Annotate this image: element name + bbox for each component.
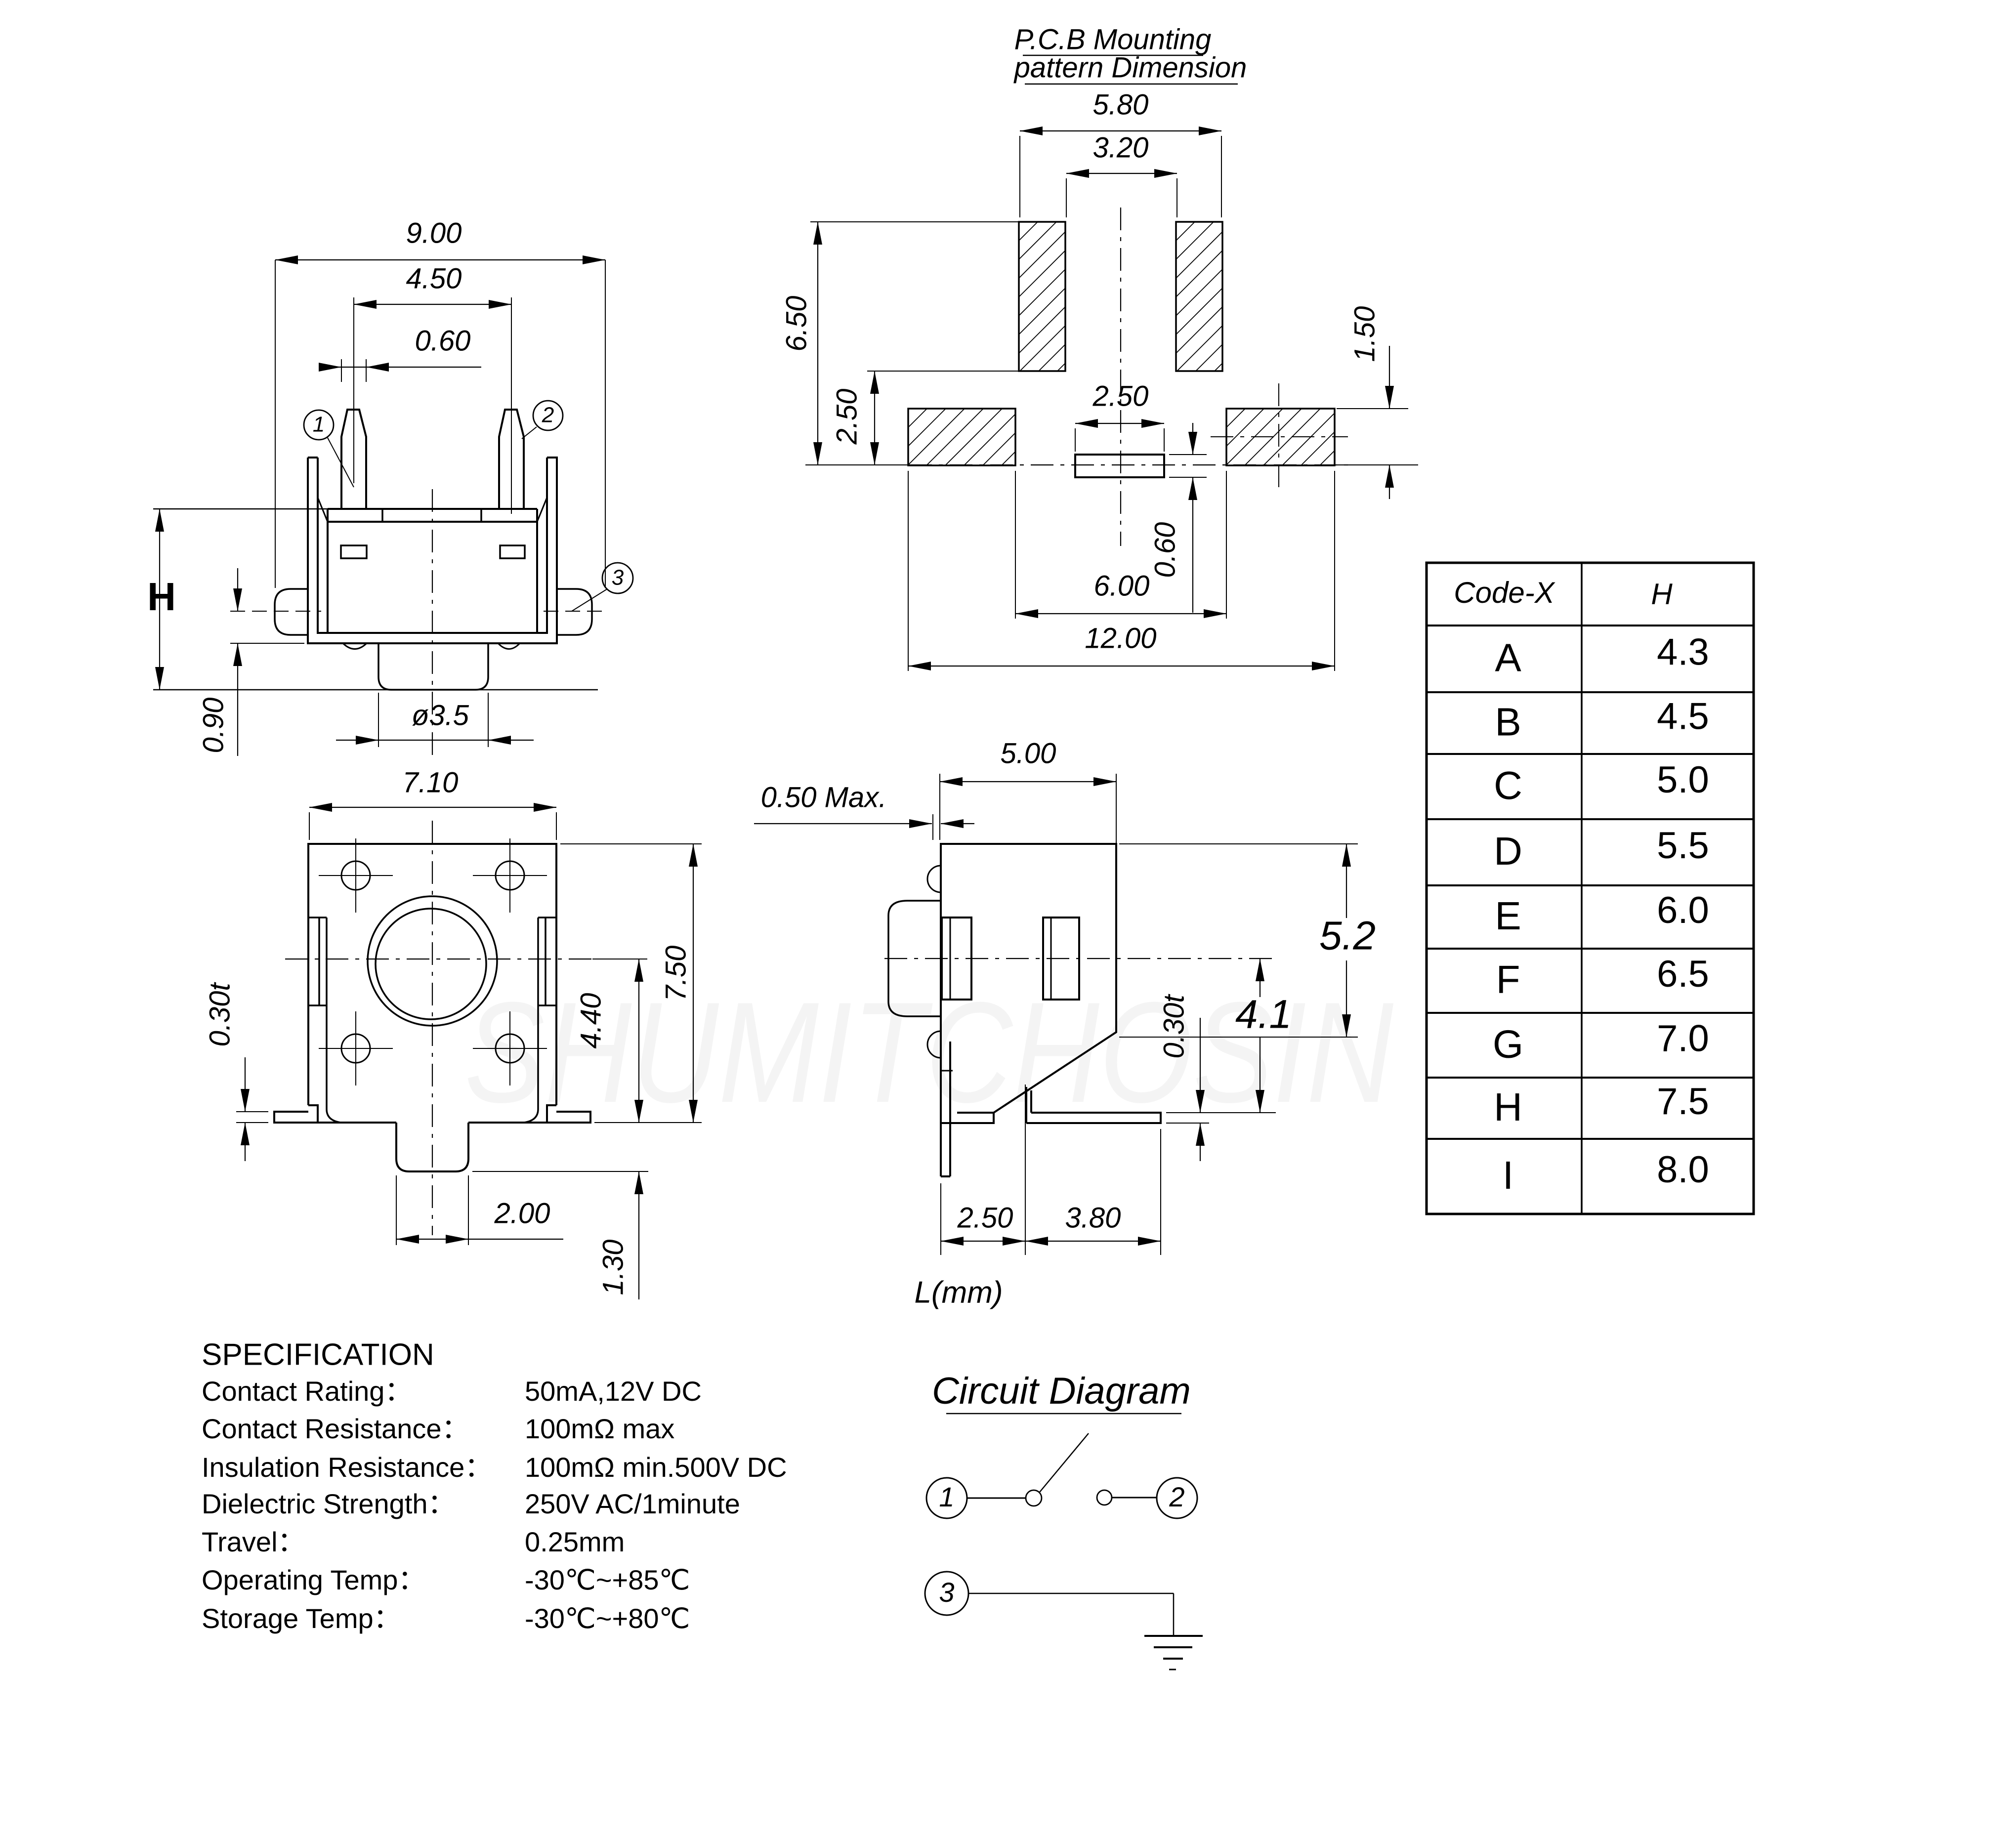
svg-text:6.00: 6.00 bbox=[1094, 570, 1150, 602]
svg-text:250V AC/1minute: 250V AC/1minute bbox=[525, 1488, 740, 1519]
svg-text:G: G bbox=[1493, 1022, 1523, 1066]
svg-text:5.5: 5.5 bbox=[1657, 825, 1709, 867]
svg-text:1: 1 bbox=[939, 1481, 954, 1512]
svg-text:6.50: 6.50 bbox=[780, 296, 812, 352]
svg-text:pattern Dimension: pattern Dimension bbox=[1013, 51, 1247, 83]
svg-text:0.30t: 0.30t bbox=[204, 982, 236, 1047]
svg-text:5.2: 5.2 bbox=[1319, 914, 1376, 959]
svg-text:12.00: 12.00 bbox=[1085, 622, 1156, 654]
svg-text:4.3: 4.3 bbox=[1657, 631, 1709, 673]
svg-text:0.30t: 0.30t bbox=[1158, 994, 1190, 1059]
svg-text:9.00: 9.00 bbox=[406, 217, 462, 249]
svg-text:7.50: 7.50 bbox=[660, 946, 692, 1001]
svg-text:ø3.5: ø3.5 bbox=[412, 699, 469, 731]
svg-text:7.10: 7.10 bbox=[403, 766, 459, 798]
svg-text:Dielectric Strength：: Dielectric Strength： bbox=[202, 1488, 456, 1519]
svg-text:2.00: 2.00 bbox=[494, 1197, 550, 1229]
svg-text:H: H bbox=[147, 575, 176, 619]
svg-text:Code-X: Code-X bbox=[1454, 576, 1555, 609]
svg-text:5.0: 5.0 bbox=[1657, 759, 1709, 801]
svg-text:5.00: 5.00 bbox=[1001, 737, 1056, 769]
svg-text:A: A bbox=[1495, 636, 1521, 680]
svg-text:100mΩ min.500V DC: 100mΩ min.500V DC bbox=[525, 1452, 787, 1483]
svg-text:4.40: 4.40 bbox=[575, 993, 607, 1049]
svg-text:L(mm): L(mm) bbox=[914, 1275, 1003, 1309]
svg-text:6.5: 6.5 bbox=[1657, 953, 1709, 995]
svg-text:Operating Temp：: Operating Temp： bbox=[202, 1564, 425, 1595]
svg-text:2.50: 2.50 bbox=[1092, 380, 1149, 412]
svg-text:SPECIFICATION: SPECIFICATION bbox=[202, 1337, 434, 1372]
svg-text:0.50 Max.: 0.50 Max. bbox=[761, 781, 887, 813]
svg-text:B: B bbox=[1495, 700, 1521, 744]
svg-text:8.0: 8.0 bbox=[1657, 1149, 1709, 1191]
svg-text:6.0: 6.0 bbox=[1657, 889, 1709, 931]
svg-text:H: H bbox=[1494, 1085, 1522, 1129]
svg-text:4.50: 4.50 bbox=[406, 262, 462, 294]
svg-text:-30℃~+85℃: -30℃~+85℃ bbox=[525, 1564, 690, 1595]
svg-text:0.60: 0.60 bbox=[415, 325, 471, 357]
svg-text:D: D bbox=[1494, 829, 1522, 873]
svg-text:0.60: 0.60 bbox=[1149, 522, 1181, 578]
svg-text:4.5: 4.5 bbox=[1657, 696, 1709, 738]
svg-text:100mΩ max: 100mΩ max bbox=[525, 1413, 674, 1444]
svg-text:2: 2 bbox=[1169, 1481, 1184, 1512]
svg-text:Insulation Resistance：: Insulation Resistance： bbox=[202, 1452, 492, 1483]
svg-text:Travel：: Travel： bbox=[202, 1526, 305, 1557]
svg-text:3.80: 3.80 bbox=[1065, 1202, 1121, 1234]
svg-text:2.50: 2.50 bbox=[831, 389, 863, 445]
svg-text:0.90: 0.90 bbox=[197, 698, 229, 753]
svg-text:4.1: 4.1 bbox=[1235, 992, 1292, 1037]
svg-text:E: E bbox=[1495, 894, 1521, 938]
svg-text:I: I bbox=[1503, 1153, 1513, 1197]
svg-text:7.5: 7.5 bbox=[1657, 1081, 1709, 1123]
svg-text:C: C bbox=[1494, 763, 1522, 807]
svg-text:5.80: 5.80 bbox=[1093, 88, 1149, 121]
svg-text:Contact Resistance：: Contact Resistance： bbox=[202, 1413, 469, 1444]
svg-text:50mA,12V DC: 50mA,12V DC bbox=[525, 1376, 702, 1407]
svg-text:Storage Temp：: Storage Temp： bbox=[202, 1603, 401, 1634]
svg-text:1.50: 1.50 bbox=[1348, 306, 1381, 362]
svg-text:3: 3 bbox=[612, 566, 624, 590]
svg-text:2.50: 2.50 bbox=[957, 1202, 1013, 1234]
svg-text:-30℃~+80℃: -30℃~+80℃ bbox=[525, 1603, 690, 1634]
svg-text:F: F bbox=[1496, 958, 1520, 1001]
svg-text:Contact Rating：: Contact Rating： bbox=[202, 1376, 412, 1407]
svg-text:3.20: 3.20 bbox=[1093, 131, 1149, 164]
svg-text:Circuit Diagram: Circuit Diagram bbox=[932, 1370, 1191, 1412]
svg-text:3: 3 bbox=[939, 1577, 954, 1608]
svg-text:P.C.B Mounting: P.C.B Mounting bbox=[1014, 23, 1212, 55]
svg-text:1: 1 bbox=[313, 413, 325, 437]
svg-text:7.0: 7.0 bbox=[1657, 1018, 1709, 1060]
svg-text:H: H bbox=[1651, 578, 1673, 611]
svg-text:1.30: 1.30 bbox=[597, 1240, 629, 1295]
svg-text:0.25mm: 0.25mm bbox=[525, 1526, 625, 1557]
svg-text:2: 2 bbox=[542, 403, 554, 427]
